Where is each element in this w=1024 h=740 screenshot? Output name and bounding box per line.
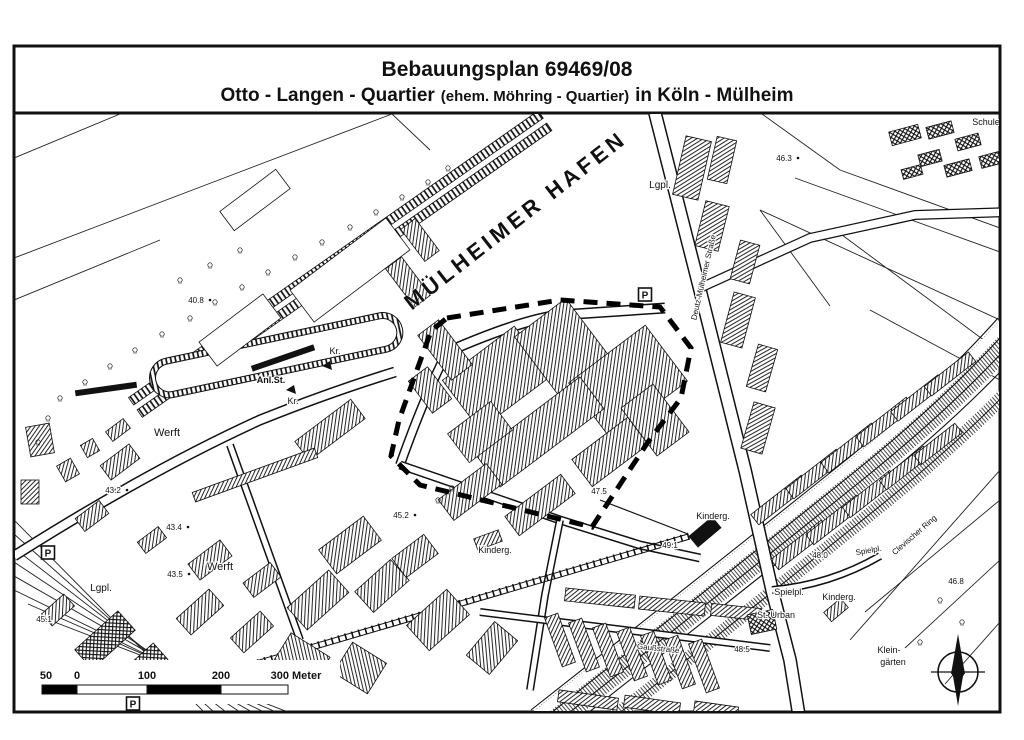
height-label: 47.5: [591, 487, 607, 496]
kindergarten-label: Kinderg.: [478, 545, 512, 555]
werft-label: Werft: [207, 561, 233, 573]
lagerplatz-label: Lgpl.: [649, 180, 671, 191]
parking-sign-label: P: [130, 700, 137, 711]
height-label: 40.8: [188, 296, 204, 305]
height-point-marker: [209, 299, 212, 302]
scale-tick-label: 0: [74, 670, 80, 682]
parking-sign-label: P: [45, 549, 52, 560]
height-point-marker: [797, 157, 800, 160]
scale-bar: 500100200300 Meter: [28, 660, 340, 704]
scale-tick-label: 200: [212, 670, 230, 682]
kindergarten-label: Kinderg.: [696, 511, 730, 521]
height-label: 45.1: [36, 615, 52, 624]
map-canvas: Bebauungsplan 69469/08 Otto - Langen - Q…: [0, 0, 1024, 740]
compass-n-label: N: [955, 668, 962, 678]
kindergarten-label: Kinderg.: [822, 592, 856, 602]
parking-sign-label: P: [642, 291, 649, 302]
scale-tick-label: 100: [138, 670, 156, 682]
schule-label: Schule: [972, 117, 1000, 127]
height-label: 43.2: [105, 486, 121, 495]
scale-segment: [42, 685, 77, 694]
scale-segment: [221, 685, 288, 694]
height-label: 43.5: [167, 570, 183, 579]
height-point-marker: [414, 514, 417, 517]
lagerplatz-label: Lgpl.: [90, 583, 112, 594]
scale-tick-label: 50: [40, 670, 52, 682]
plan-sheet: Bebauungsplan 69469/08 Otto - Langen - Q…: [0, 0, 1024, 740]
church-label: St. Urban: [757, 610, 795, 620]
scale-segment: [77, 685, 147, 694]
parcel-lines: [14, 114, 1000, 712]
title-block: Bebauungsplan 69469/08 Otto - Langen - Q…: [221, 58, 794, 106]
height-point-marker: [126, 489, 129, 492]
scale-tick-label: 300 Meter: [271, 670, 322, 682]
height-label: 49.1: [662, 541, 678, 550]
plan-subtitle: Otto - Langen - Quartier(ehem. Möhring -…: [221, 85, 794, 106]
street-label-clevischer-ring: Clevischer Ring: [890, 513, 938, 557]
streets: [14, 113, 1012, 722]
height-label: 46.8: [948, 577, 964, 586]
height-label: 48.5: [734, 645, 750, 654]
kran-label: Kr.: [287, 396, 298, 406]
scale-segment: [147, 685, 221, 694]
spielplatz-label: Spielpl.: [774, 587, 804, 597]
height-label: 46.3: [776, 154, 792, 163]
height-point-marker: [187, 526, 190, 529]
plan-title: Bebauungsplan 69469/08: [382, 58, 633, 81]
height-label: 45.2: [393, 511, 409, 520]
anlegestelle-label: Anl.St.: [257, 375, 286, 385]
height-point-marker: [188, 573, 191, 576]
height-label: 48.0: [812, 551, 828, 560]
kleingaerten-label: Klein-: [877, 645, 900, 655]
compass-north-icon: N: [931, 634, 985, 706]
kleingaerten-label: gärten: [880, 657, 906, 667]
height-label: 43.4: [166, 523, 182, 532]
kran-label: Kr.: [329, 346, 340, 356]
werft-label: Werft: [154, 427, 180, 439]
